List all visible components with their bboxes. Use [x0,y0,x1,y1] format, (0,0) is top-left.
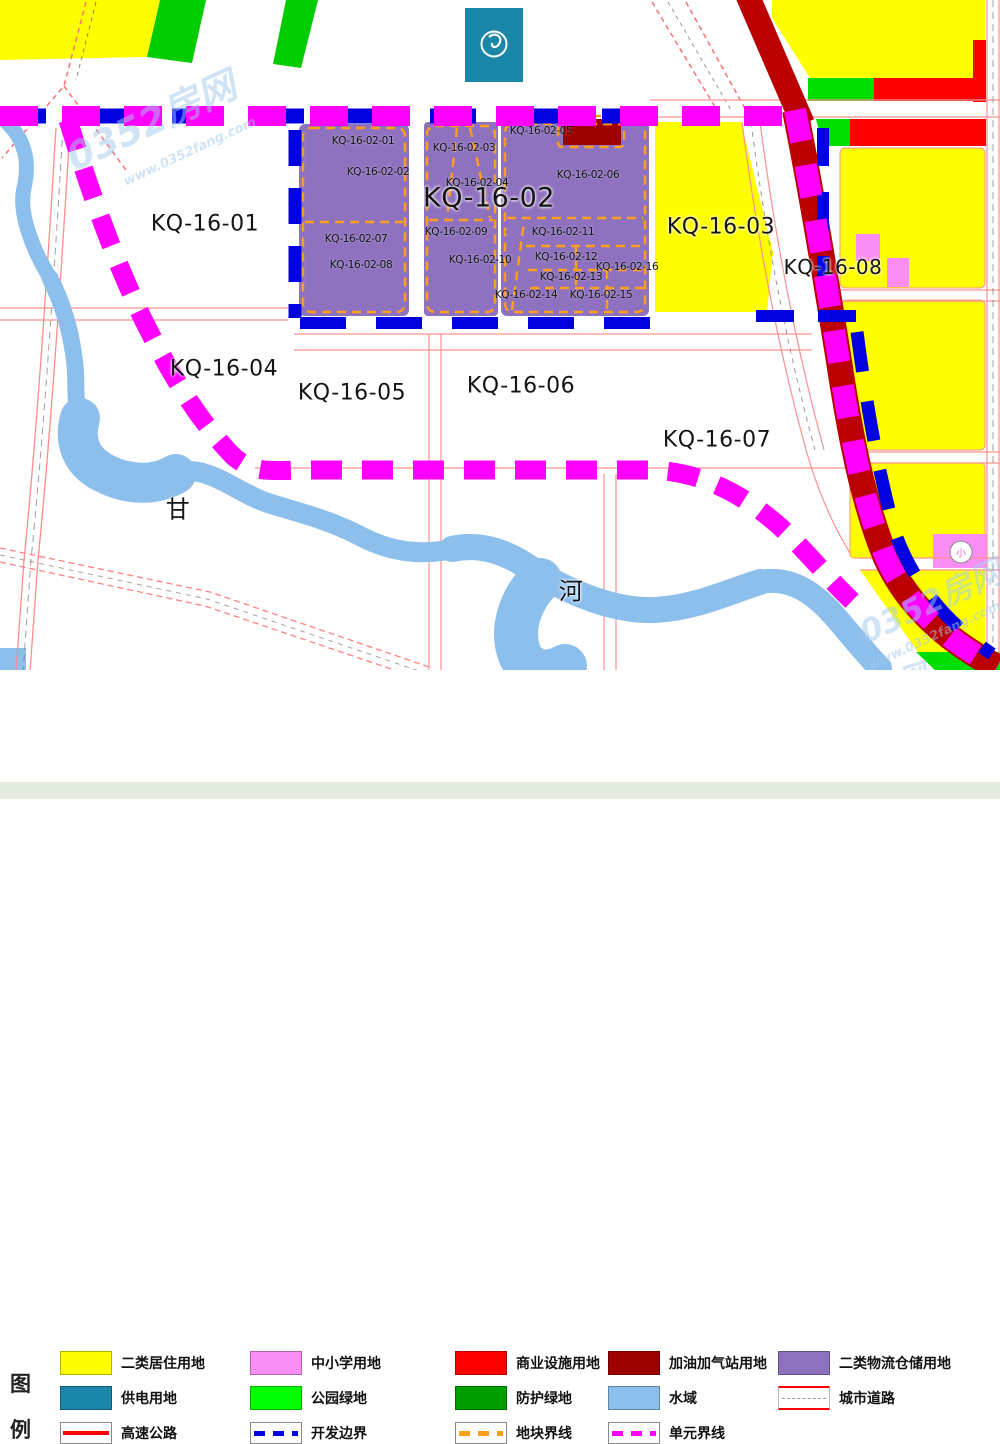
parcel-label-kq-16-02-10: KQ-16-02-10 [449,254,512,266]
development-boundary-swatch [250,1422,302,1444]
green-strip-topright [808,78,874,101]
parcel-label-kq-16-02-08: KQ-16-02-08 [330,259,393,271]
parcel-label-kq-16-02-13: KQ-16-02-13 [540,271,603,283]
legend-item-logistics: 二类物流仓储用地 [778,1351,951,1375]
residential-block-topleft [0,0,160,60]
legend-item-residential: 二类居住用地 [60,1351,205,1375]
parcel-label-kq-16-02-12: KQ-16-02-12 [535,251,598,263]
parcel-label-kq-16-02-09: KQ-16-02-09 [425,226,488,238]
zone-label-kq-16-05: KQ-16-05 [298,381,406,406]
residential-swatch [60,1351,112,1375]
parcel-label-kq-16-02-05: KQ-16-02-05 [510,125,573,137]
parcel-label-kq-16-02-04: KQ-16-02-04 [446,177,509,189]
urban-road-swatch [778,1386,830,1410]
parcel-label-kq-16-02-15: KQ-16-02-15 [570,289,633,301]
water-swatch [608,1386,660,1410]
school-swatch [250,1351,302,1375]
legend-item-urban-road: 城市道路 [778,1386,895,1410]
zone-label-kq-16-03: KQ-16-03 [667,215,775,240]
residential-block-topright [772,0,985,78]
commercial-strip-edge [973,40,986,102]
unit-boundary-swatch [608,1422,660,1444]
zone-label-kq-16-08: KQ-16-08 [784,255,883,279]
power-swatch [60,1386,112,1410]
legend-item-highway: 高速公路 [60,1422,177,1444]
legend-item-gas-station: 加油加气站用地 [608,1351,767,1375]
zone-label-kq-16-01: KQ-16-01 [151,212,259,237]
legend-item-water: 水域 [608,1386,697,1410]
parcel-label-kq-16-02-07: KQ-16-02-07 [325,233,388,245]
parcel-label-kq-16-02-06: KQ-16-02-06 [557,169,620,181]
commercial-swatch [455,1351,507,1375]
protective-green-swatch [455,1386,507,1410]
parcel-label-kq-16-02-11: KQ-16-02-11 [532,226,595,238]
zone-label-kq-16-04: KQ-16-04 [170,357,278,382]
river-label-he: 河 [559,572,584,607]
legend-title-char-2: 例 [10,1414,31,1444]
green-strip-topleft-2 [273,0,318,68]
parcel-label-kq-16-02-16: KQ-16-02-16 [596,261,659,273]
logistics-swatch [778,1351,830,1375]
logistics-block-west [299,124,409,316]
parcel-boundary-swatch [455,1422,507,1444]
school-patch-east-1 [887,258,909,287]
legend-item-unit-boundary: 单元界线 [608,1422,725,1444]
parcel-label-kq-16-02-02: KQ-16-02-02 [347,166,410,178]
commercial-strip-east [850,119,986,146]
gas-station-swatch [608,1351,660,1375]
park-green-swatch [250,1386,302,1410]
residential-block-east-2 [842,300,985,450]
legend-item-parcel-boundary: 地块界线 [455,1422,572,1444]
parcel-label-kq-16-02-03: KQ-16-02-03 [433,142,496,154]
commercial-strip-topright [874,78,985,101]
parcel-label-kq-16-02-14: KQ-16-02-14 [495,289,558,301]
power-supply-block [465,8,523,82]
legend-item-commercial: 商业设施用地 [455,1351,600,1375]
legend-item-park-green: 公园绿地 [250,1386,367,1410]
legend-item-power: 供电用地 [60,1386,177,1410]
river-label-gan: 甘 [166,490,191,525]
water-patch-bottomleft [0,648,26,672]
legend-panel: 图 例 二类居住用地 中小学用地 商业设施用地 加油加气站用地 二类物流仓储用地… [0,670,1000,782]
parcel-label-kq-16-02-01: KQ-16-02-01 [332,135,395,147]
zone-label-kq-16-06: KQ-16-06 [467,374,575,399]
legend-title-char-1: 图 [10,1368,31,1398]
legend-item-protective-green: 防护绿地 [455,1386,572,1410]
legend-item-development-boundary: 开发边界 [250,1422,367,1444]
highway-swatch [60,1422,112,1444]
bottom-strip [0,782,1000,799]
zone-label-kq-16-07: KQ-16-07 [663,428,771,453]
legend-item-school: 中小学用地 [250,1351,381,1375]
